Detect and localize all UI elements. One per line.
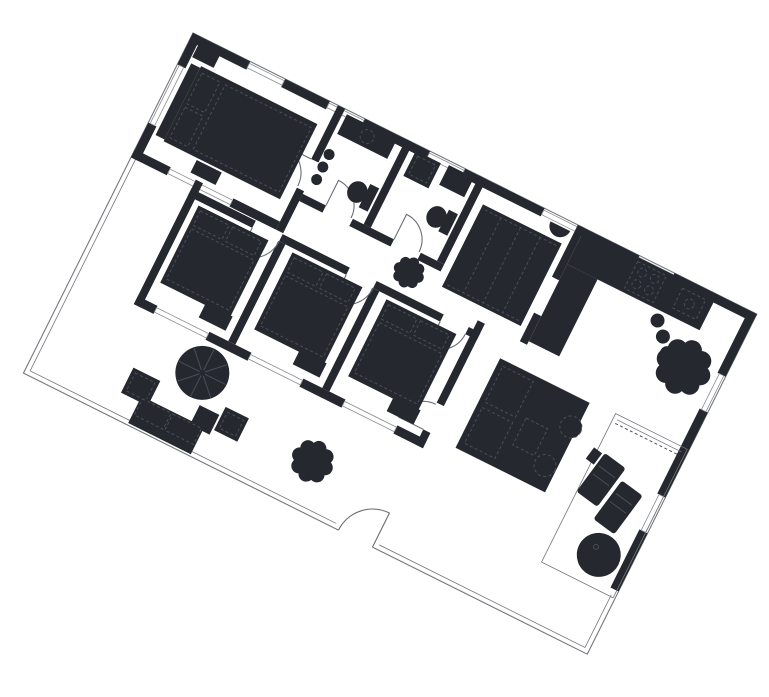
patio-exit-door-arc: [338, 496, 389, 547]
bedroom-1: [146, 43, 327, 214]
window: [641, 494, 663, 532]
bathroom-1: [309, 113, 402, 212]
dining-living: [456, 358, 595, 494]
window: [342, 401, 396, 431]
window: [154, 308, 208, 338]
sliding-door-track: [617, 420, 681, 452]
pouf: [214, 407, 249, 442]
rotated-plan: [23, 33, 756, 654]
bathroom-2-door-arc: [394, 214, 432, 252]
window: [248, 354, 302, 384]
window: [247, 63, 284, 85]
floor-plan-canvas: [0, 0, 769, 697]
loungers: [560, 446, 650, 535]
plant-icon: [283, 432, 342, 491]
sofa: [128, 396, 204, 454]
floor-plan-stage: [0, 0, 769, 697]
sliding-door-glass: [615, 423, 679, 455]
